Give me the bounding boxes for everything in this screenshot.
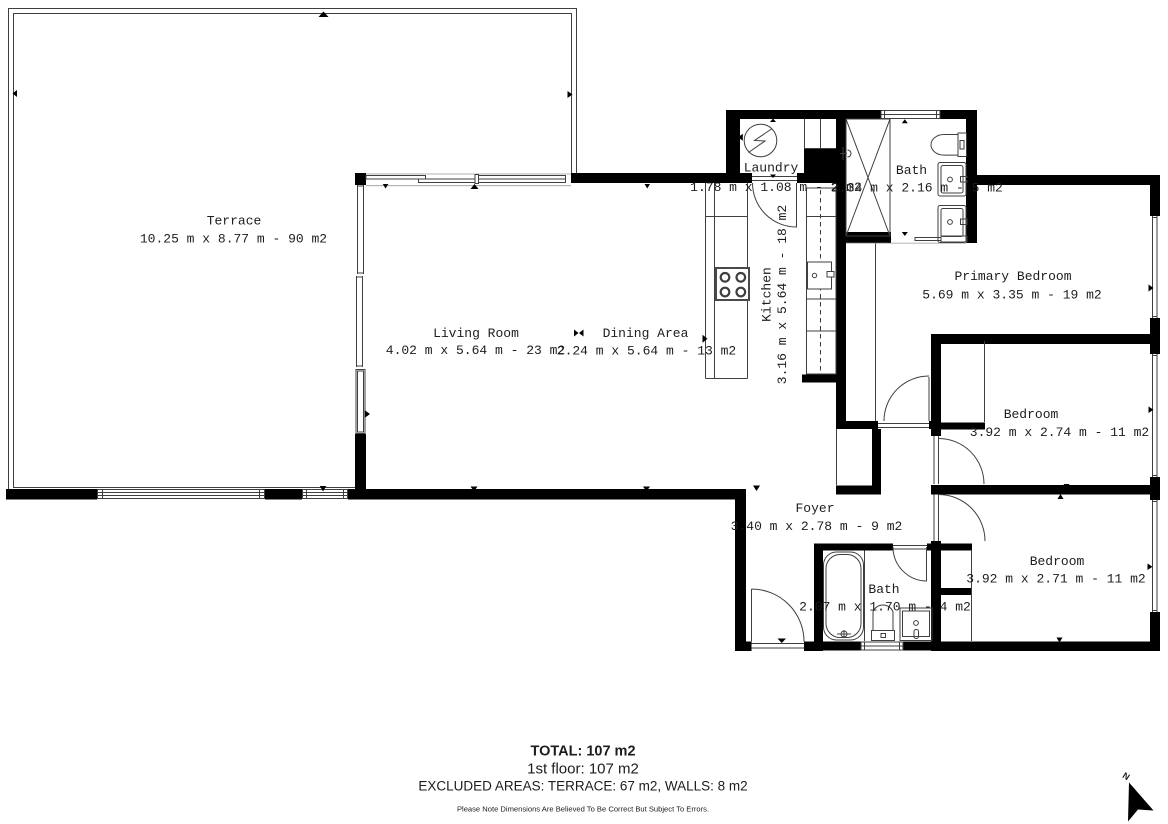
svg-text:Living Room: Living Room [433, 326, 519, 341]
svg-text:Kitchen: Kitchen [760, 267, 775, 322]
svg-text:5.69 m x 3.35 m - 19 m2: 5.69 m x 3.35 m - 19 m2 [922, 288, 1101, 303]
svg-text:2.07 m x 1.70 m - 4 m2: 2.07 m x 1.70 m - 4 m2 [799, 600, 971, 615]
svg-text:3.92 m x 2.71 m - 11 m2: 3.92 m x 2.71 m - 11 m2 [966, 572, 1145, 587]
svg-text:1st floor: 107 m2: 1st floor: 107 m2 [527, 761, 639, 778]
svg-text:Primary Bedroom: Primary Bedroom [954, 269, 1071, 284]
svg-text:EXCLUDED AREAS: TERRACE: 67 m2: EXCLUDED AREAS: TERRACE: 67 m2, WALLS: 8… [418, 779, 747, 794]
svg-text:2.34 m x 2.16 m - 5 m2: 2.34 m x 2.16 m - 5 m2 [831, 181, 1003, 196]
svg-text:Please Note Dimensions Are Bel: Please Note Dimensions Are Believed To B… [457, 805, 709, 814]
svg-text:Bedroom: Bedroom [1030, 554, 1085, 569]
svg-text:Bedroom: Bedroom [1004, 407, 1059, 422]
svg-text:Bath: Bath [896, 163, 927, 178]
svg-text:TOTAL: 107 m2: TOTAL: 107 m2 [530, 744, 635, 760]
svg-text:Dining Area: Dining Area [603, 326, 689, 341]
svg-text:Terrace: Terrace [207, 214, 262, 229]
svg-text:Foyer: Foyer [795, 501, 834, 516]
svg-text:3.40 m x 2.78 m - 9 m2: 3.40 m x 2.78 m - 9 m2 [731, 519, 903, 534]
svg-text:Bath: Bath [868, 582, 899, 597]
svg-text:10.25 m x 8.77 m - 90 m2: 10.25 m x 8.77 m - 90 m2 [140, 232, 327, 247]
svg-text:Laundry: Laundry [744, 161, 799, 176]
svg-text:4.02 m x 5.64 m - 23 m2: 4.02 m x 5.64 m - 23 m2 [386, 343, 565, 358]
svg-text:2.24 m x 5.64 m - 13 m2: 2.24 m x 5.64 m - 13 m2 [557, 344, 736, 359]
svg-text:3.92 m x 2.74 m - 11 m2: 3.92 m x 2.74 m - 11 m2 [970, 425, 1149, 440]
svg-text:3.16 m x 5.64 m - 18 m2: 3.16 m x 5.64 m - 18 m2 [775, 205, 790, 384]
